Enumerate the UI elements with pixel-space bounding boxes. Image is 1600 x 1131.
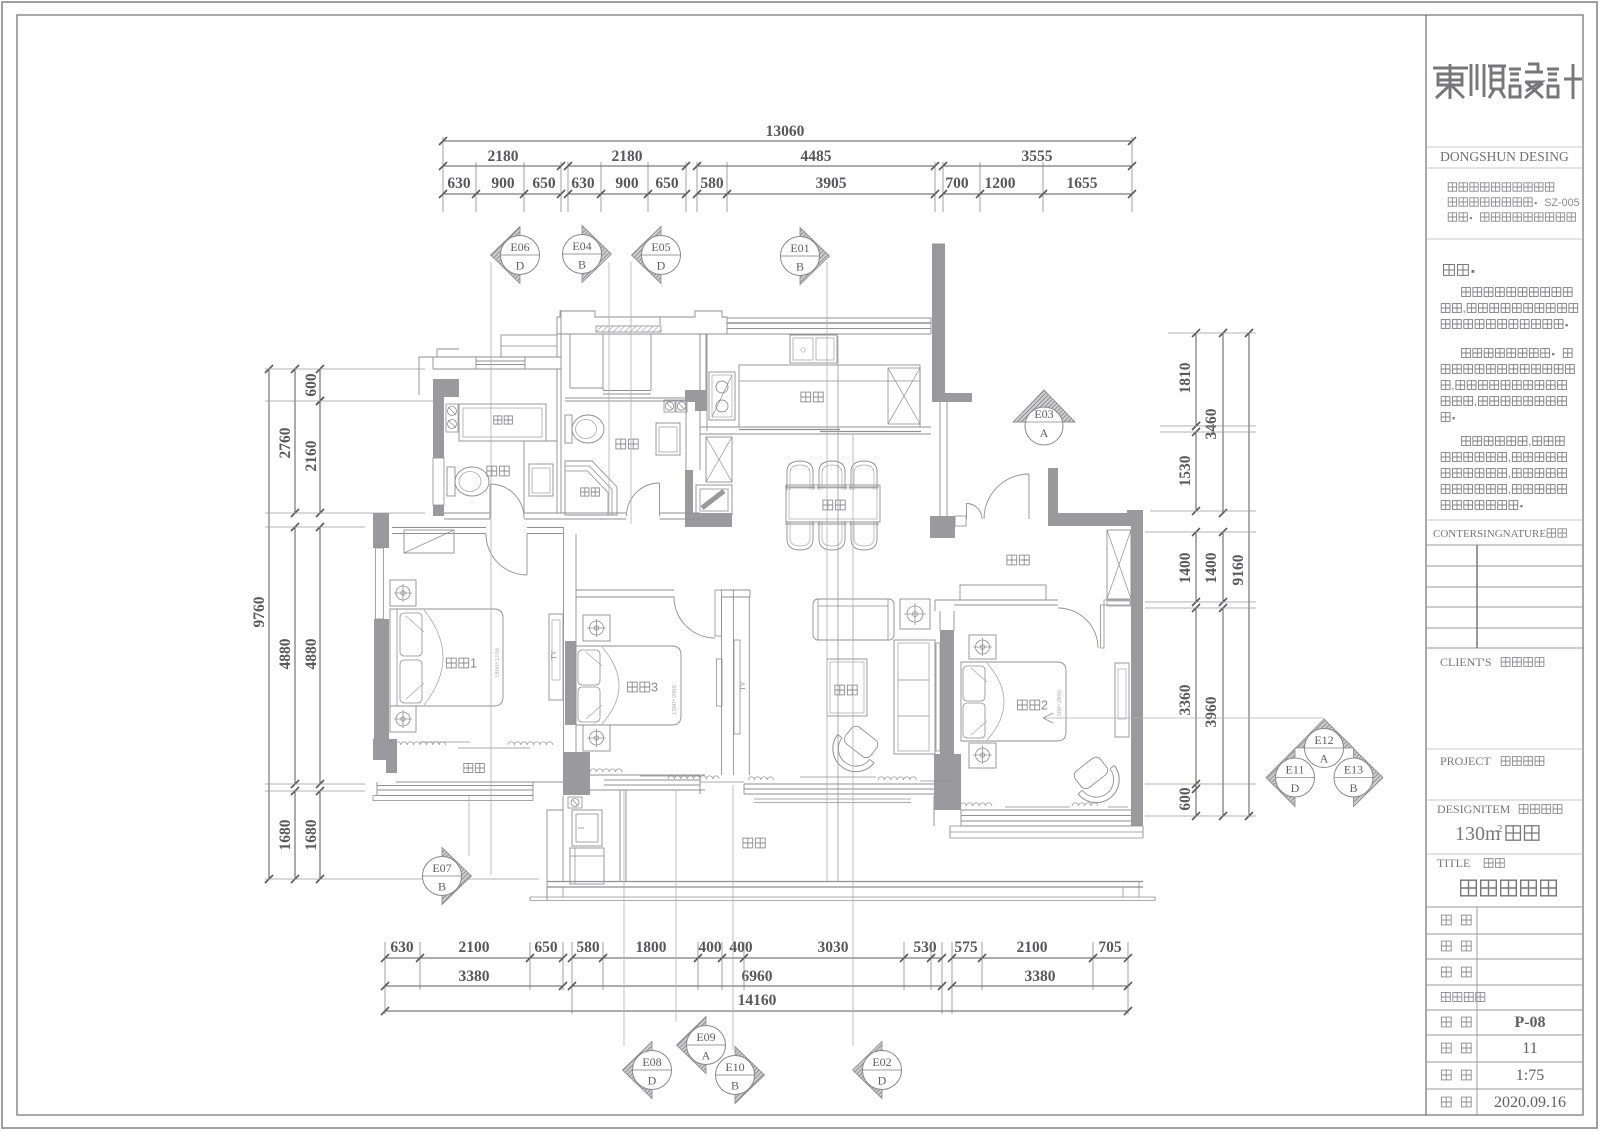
svg-text:SZ-005: SZ-005 (1544, 197, 1579, 209)
svg-text:2760: 2760 (277, 427, 294, 458)
svg-text:580: 580 (576, 939, 600, 956)
svg-text:705: 705 (1098, 939, 1122, 956)
svg-text:3360: 3360 (1177, 684, 1194, 715)
svg-text:3380: 3380 (459, 968, 490, 985)
svg-text:600: 600 (1177, 787, 1194, 811)
svg-text:900: 900 (615, 175, 639, 192)
svg-text:2020.09.16: 2020.09.16 (1494, 1094, 1566, 1111)
svg-text:E05: E05 (651, 240, 670, 254)
svg-text:E03: E03 (1034, 407, 1053, 421)
svg-text:1200: 1200 (985, 175, 1016, 192)
svg-text:2: 2 (1497, 823, 1503, 835)
svg-text:D: D (516, 259, 525, 273)
svg-text:1810: 1810 (1177, 362, 1194, 393)
svg-text:B: B (796, 260, 804, 274)
svg-text:CONTERSINGNATURE: CONTERSINGNATURE (1433, 528, 1546, 540)
svg-text:1530: 1530 (1177, 455, 1194, 486)
svg-text:2: 2 (1041, 699, 1048, 713)
svg-text:2180: 2180 (488, 148, 519, 165)
svg-text:,: , (1508, 484, 1511, 496)
svg-text:700: 700 (945, 175, 969, 192)
svg-text:4880: 4880 (303, 638, 320, 669)
svg-text:E06: E06 (510, 240, 529, 254)
svg-text:D: D (878, 1074, 887, 1088)
svg-text:14160: 14160 (738, 992, 777, 1009)
svg-text:E01: E01 (790, 241, 809, 255)
svg-text:A: A (1320, 752, 1329, 766)
svg-text:630: 630 (447, 175, 471, 192)
svg-text:1800: 1800 (636, 939, 667, 956)
svg-text:575: 575 (954, 939, 978, 956)
svg-text:3960: 3960 (1203, 696, 1220, 727)
svg-text:E02: E02 (872, 1055, 891, 1069)
svg-text:2180: 2180 (612, 148, 643, 165)
svg-text:2160: 2160 (303, 440, 320, 471)
svg-text:E07: E07 (432, 861, 451, 875)
svg-text:D: D (1291, 781, 1300, 795)
svg-text:9760: 9760 (251, 596, 268, 627)
svg-text:D: D (648, 1074, 657, 1088)
svg-text:1400: 1400 (1203, 552, 1220, 583)
svg-text:580: 580 (700, 175, 724, 192)
svg-text:PROJECT: PROJECT (1440, 754, 1491, 768)
svg-text:1500+2000: 1500+2000 (671, 685, 678, 715)
svg-text:E04: E04 (572, 239, 591, 253)
svg-text:650: 650 (655, 175, 679, 192)
svg-text:1400: 1400 (1177, 552, 1194, 583)
svg-text:130m: 130m (1455, 823, 1501, 845)
svg-text:A: A (702, 1049, 711, 1063)
svg-text:P-08: P-08 (1514, 1014, 1545, 1031)
svg-text:B: B (578, 258, 586, 272)
svg-text:650: 650 (534, 939, 558, 956)
svg-text:400: 400 (698, 939, 722, 956)
svg-text:530: 530 (913, 939, 937, 956)
svg-text:E12: E12 (1314, 733, 1333, 747)
svg-text:,: , (1451, 380, 1454, 392)
svg-text:TV: TV (550, 650, 558, 659)
svg-text:1800+2100: 1800+2100 (494, 648, 501, 678)
svg-text:3: 3 (651, 681, 658, 695)
svg-text:630: 630 (390, 939, 414, 956)
svg-text:CLIENT'S: CLIENT'S (1440, 655, 1492, 669)
svg-text:11: 11 (1522, 1040, 1537, 1057)
svg-text:3380: 3380 (1025, 968, 1056, 985)
svg-text:3555: 3555 (1022, 148, 1053, 165)
svg-text:A: A (1040, 426, 1049, 440)
svg-text:3460: 3460 (1203, 408, 1220, 439)
svg-text:B: B (731, 1079, 739, 1093)
svg-text:650: 650 (532, 175, 556, 192)
svg-text:900: 900 (491, 175, 515, 192)
svg-text:600: 600 (303, 373, 320, 397)
svg-text:13060: 13060 (766, 123, 805, 140)
svg-text:TV: TV (739, 681, 747, 690)
svg-text:3030: 3030 (818, 939, 849, 956)
svg-text:1680: 1680 (277, 819, 294, 850)
svg-text:DONGSHUN DESING: DONGSHUN DESING (1440, 149, 1569, 164)
svg-text:,: , (1528, 436, 1531, 448)
svg-text:E09: E09 (696, 1030, 715, 1044)
svg-text:1500+2000: 1500+2000 (1056, 690, 1063, 720)
svg-text:1:75: 1:75 (1516, 1067, 1544, 1084)
svg-text:630: 630 (571, 175, 595, 192)
svg-text:3905: 3905 (816, 175, 847, 192)
svg-text:B: B (1349, 781, 1357, 795)
svg-text:E08: E08 (642, 1055, 661, 1069)
svg-text:E11: E11 (1286, 763, 1305, 777)
svg-text:1680: 1680 (303, 819, 320, 850)
svg-text:2100: 2100 (1017, 939, 1048, 956)
svg-text:4880: 4880 (277, 638, 294, 669)
svg-text:B: B (438, 880, 446, 894)
svg-text:,: , (1508, 468, 1511, 480)
svg-text:6960: 6960 (742, 968, 773, 985)
svg-text:DESIGNITEM: DESIGNITEM (1437, 802, 1511, 816)
svg-text:TITLE: TITLE (1437, 856, 1470, 870)
svg-text:9160: 9160 (1230, 554, 1247, 585)
svg-text:,: , (1474, 396, 1477, 408)
svg-text:,: , (1508, 452, 1511, 464)
svg-text:2100: 2100 (459, 939, 490, 956)
svg-text:D: D (657, 259, 666, 273)
svg-text:1655: 1655 (1067, 175, 1098, 192)
svg-text:E10: E10 (725, 1060, 744, 1074)
svg-text:4485: 4485 (801, 148, 832, 165)
svg-text:E13: E13 (1344, 763, 1363, 777)
svg-text:1: 1 (470, 657, 477, 671)
svg-text:,: , (1463, 303, 1466, 315)
